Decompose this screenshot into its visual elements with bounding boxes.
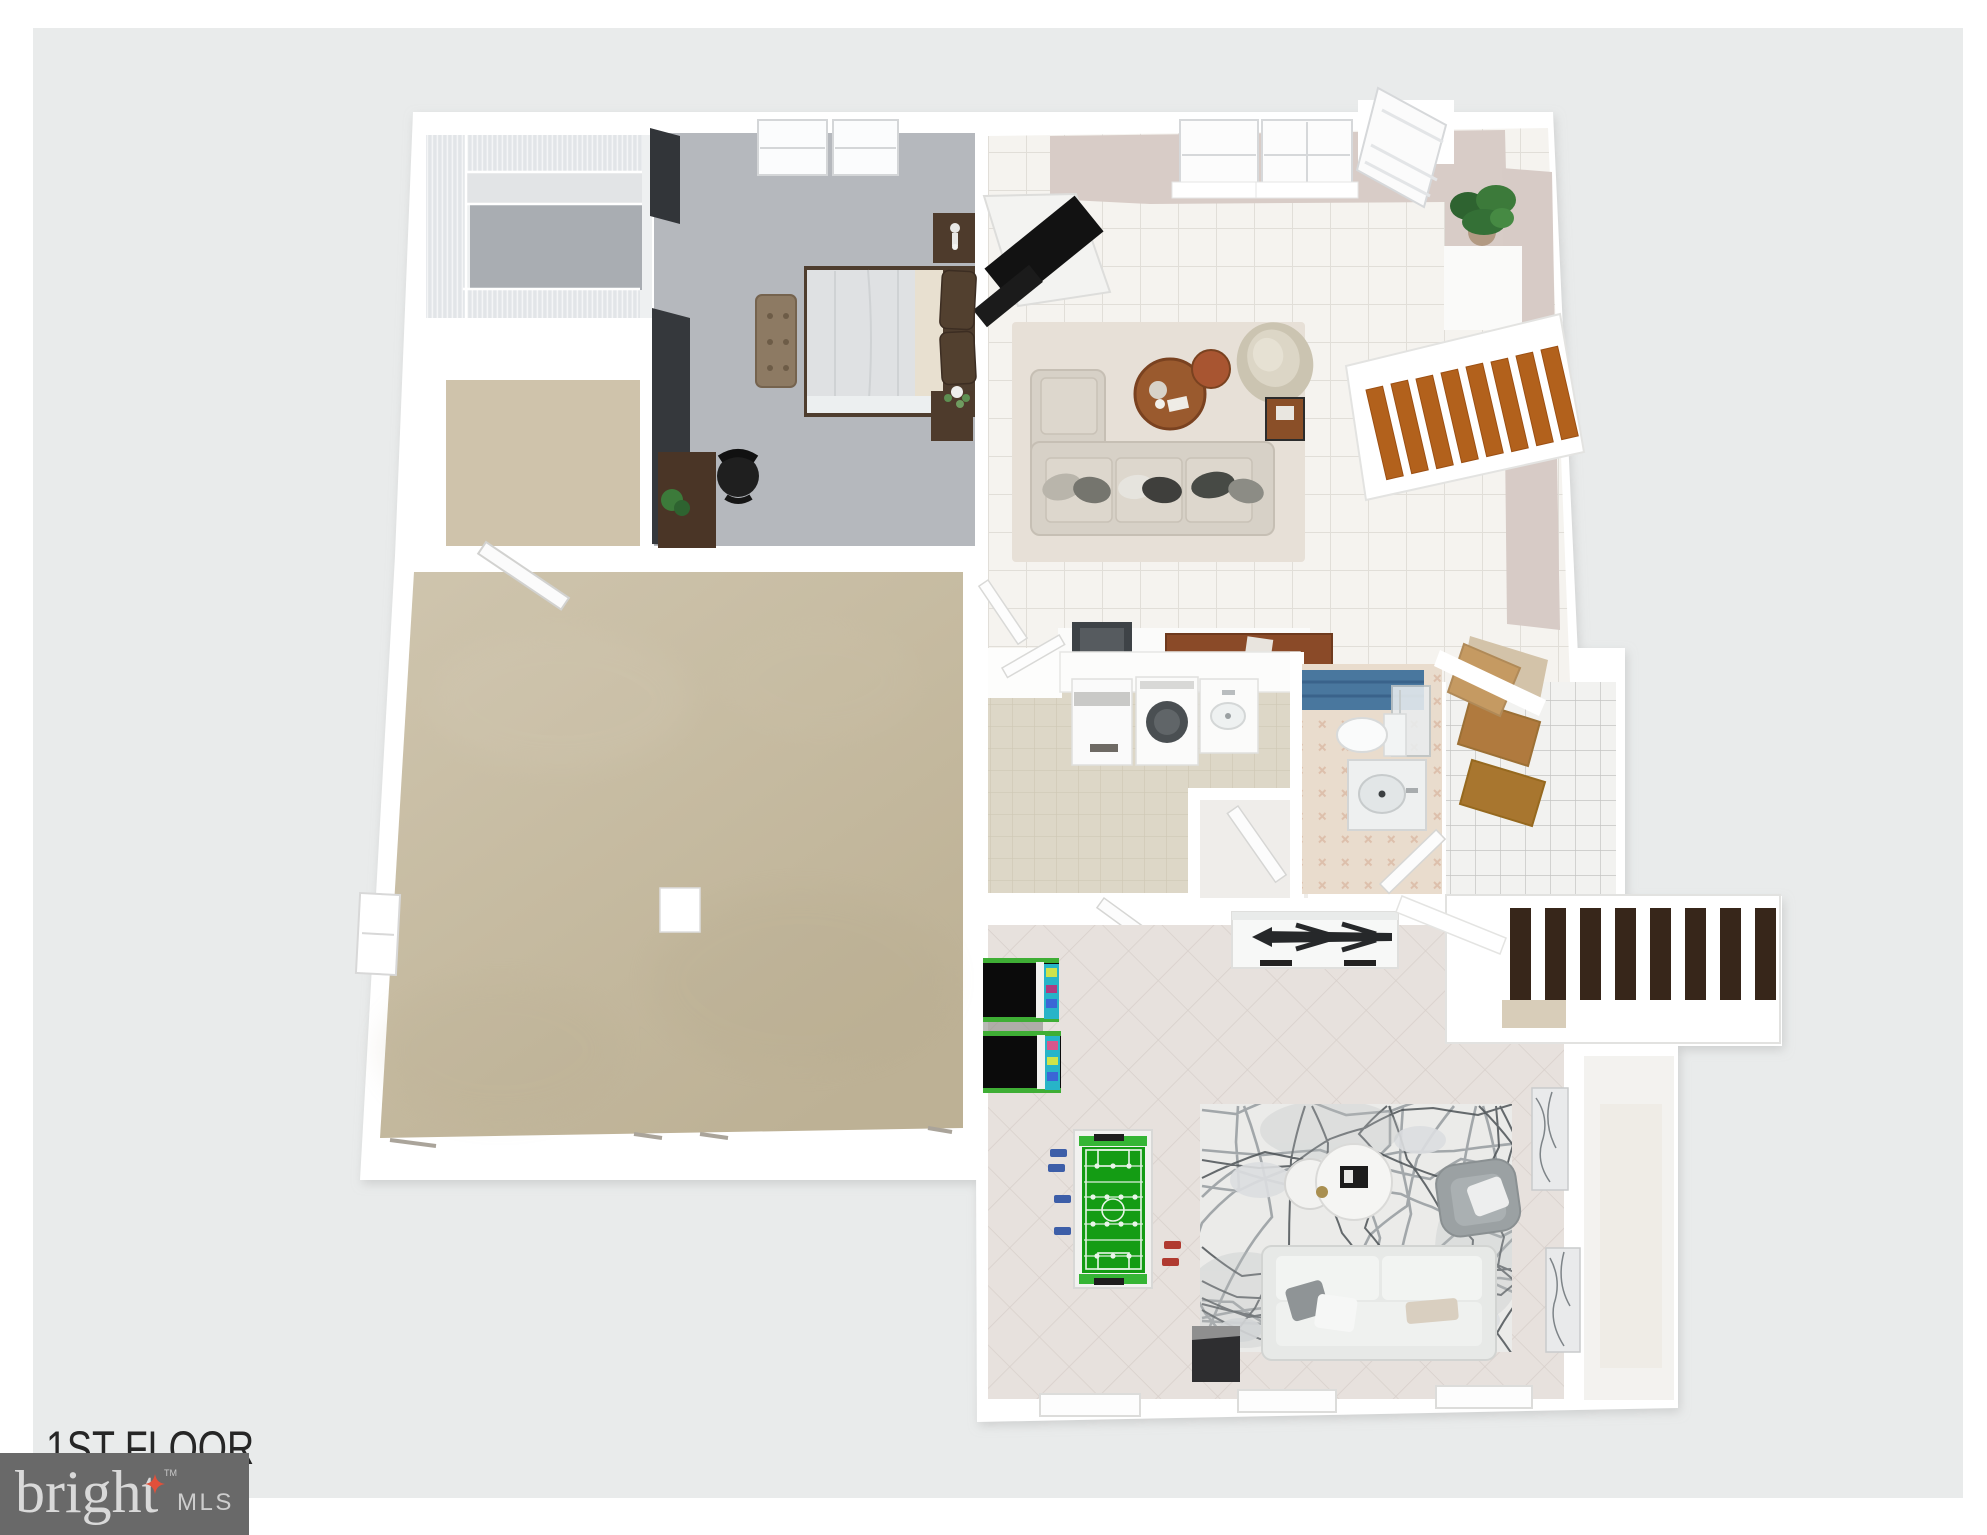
svg-text:TM: TM	[164, 1468, 177, 1478]
svg-text:MLS: MLS	[177, 1489, 234, 1516]
svg-text:bright: bright	[15, 1459, 159, 1525]
